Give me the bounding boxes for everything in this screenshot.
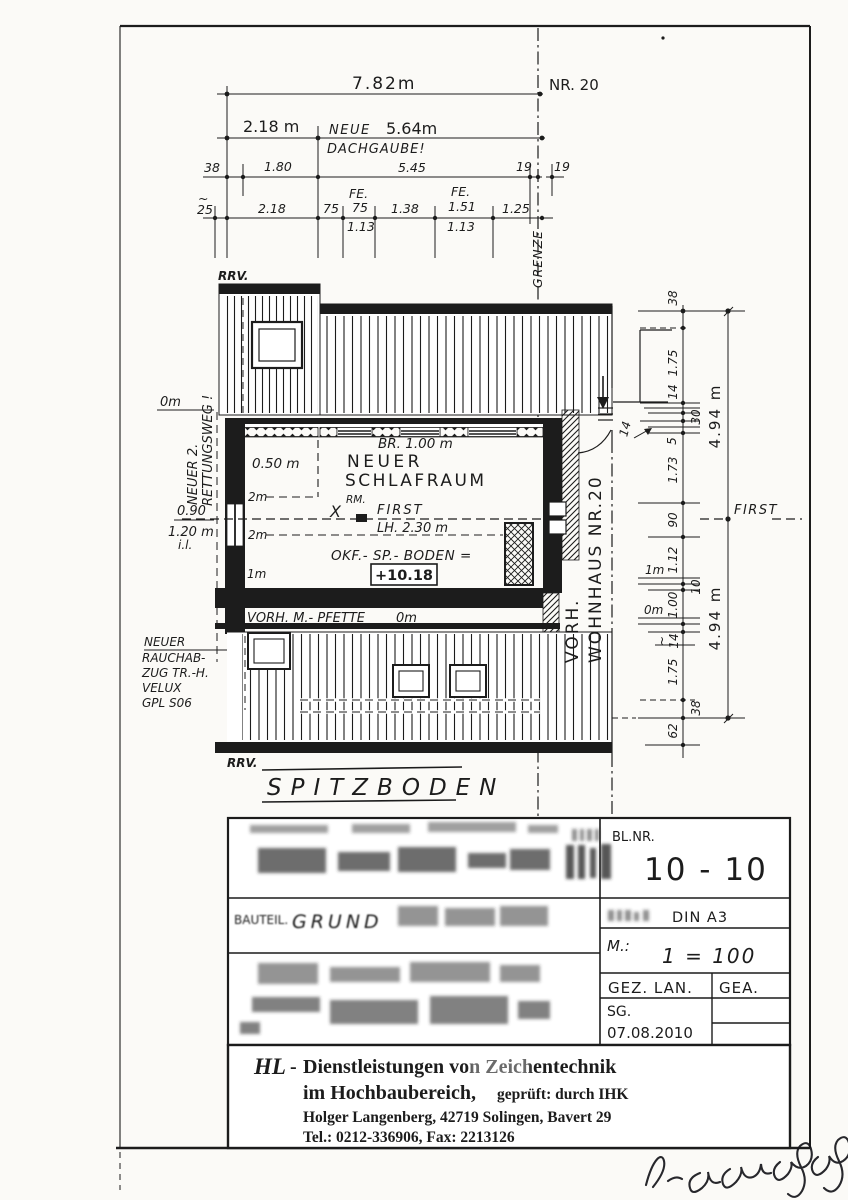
skylight-smoke-vent	[248, 633, 290, 669]
smoke-vent-labels: NEUER RAUCHAB- ZUG TR.-H. VELUX GPL S06	[141, 635, 209, 710]
rdim-38b: 38	[689, 700, 703, 716]
dim-19b: 19	[554, 159, 570, 174]
company-line4: Tel.: 0212-336906, Fax: 2213126	[303, 1129, 515, 1146]
dim-113a: 1.13	[347, 219, 375, 234]
label-pfette-0m: 0m	[396, 611, 417, 626]
rdim-38-top: 38	[666, 290, 680, 306]
rdim-112: 1.12	[666, 547, 680, 574]
label-first: FIRST	[377, 503, 424, 518]
tb-gez: GEZ. LAN.	[608, 979, 693, 997]
dim-br100: BR. 1.00 m	[378, 436, 453, 452]
label-wohnhaus-nr20: WOHNHAUS NR.20	[586, 475, 606, 663]
rdim-5: 5	[665, 437, 679, 445]
rauch-line5: GPL S06	[142, 696, 192, 710]
label-first-right: FIRST	[734, 503, 778, 518]
label-rrv-bottom: RRV.	[227, 756, 257, 770]
floor-plan-drawing: 7.82m NR. 20 2.18 m NEUE 5.64m DACHGAUBE…	[0, 0, 848, 1200]
company-line1: Dienstleistungen von Zeichentechnik	[303, 1056, 617, 1078]
tb-din-format: DIN A3	[672, 910, 728, 926]
dim-138: 1.38	[391, 201, 419, 216]
skylight-lower-2	[450, 665, 486, 697]
label-okf-boden: OKF.- SP.- BODEN =	[331, 548, 472, 564]
scanned-drawing-page: 7.82m NR. 20 2.18 m NEUE 5.64m DACHGAUBE…	[0, 0, 848, 1200]
roof-hatch-lower	[215, 632, 612, 753]
x-mark: X	[329, 502, 342, 521]
dim-218m: 2.18 m	[243, 117, 299, 136]
room-name-line1: NEUER	[347, 452, 423, 472]
rlevel-1m: 1m	[645, 563, 664, 577]
tb-gea: GEA.	[719, 979, 759, 997]
door-swing-arc	[578, 430, 611, 453]
rauch-line2: RAUCHAB-	[142, 651, 205, 665]
company-line3: Holger Langenberg, 42719 Solingen, Baver…	[303, 1109, 612, 1126]
title-block: BL.NR. 10 - 10 BAUTEIL. GRUND DIN A3 M.:…	[228, 818, 790, 1045]
dim-125: 1.25	[502, 201, 530, 216]
label-rrv-top: RRV.	[218, 269, 248, 283]
dim-218b: 2.18	[258, 201, 286, 216]
label-dachgaube: DACHGAUBE!	[327, 142, 426, 157]
skylight-lower-1	[393, 665, 429, 697]
rauch-line4: VELUX	[142, 681, 182, 695]
dim-545: 5.45	[398, 160, 426, 175]
rlevel-0m: 0m	[644, 603, 663, 617]
dim-75a: 75	[323, 201, 339, 216]
dim-113b: 1.13	[447, 219, 475, 234]
floor-plan: RRV.	[141, 269, 672, 820]
dim-lh230: LH. 2.30 m	[377, 521, 448, 536]
rdim-175b: 1.75	[666, 659, 680, 686]
dim-090: 0.90	[177, 504, 206, 519]
rdim-62: 62	[666, 723, 680, 738]
tb-blnr-label: BL.NR.	[612, 830, 655, 845]
title-spitzboden: SPITZBODEN	[267, 775, 505, 801]
level-0m-left: 0m	[160, 395, 181, 410]
rdim-14a: 14	[666, 384, 680, 399]
rdim-173: 1.73	[666, 457, 680, 484]
tb-sg: SG.	[607, 1004, 631, 1020]
rdim-30: 30	[689, 409, 703, 425]
dormer-window-band	[225, 418, 562, 437]
room-name-line2: SCHLAFRAUM	[345, 471, 487, 491]
loft-ladder	[505, 523, 533, 585]
dim-75b: 75	[352, 200, 368, 215]
headroom-2m-b: 2m	[248, 528, 267, 542]
rdim-10: 10	[689, 579, 703, 595]
rescue-route-line1: NEUER 2.	[186, 444, 201, 505]
tb-scale-value: 1 = 100	[662, 944, 756, 968]
rauch-line3: ZUG TR.-H.	[141, 666, 209, 680]
dim-180: 1.80	[264, 159, 292, 174]
company-line2: im Hochbaubereich,	[303, 1082, 476, 1104]
dim-050m: 0.50 m	[252, 456, 300, 472]
label-house-number: NR. 20	[549, 76, 599, 94]
level-annotation-box: +10.18	[371, 564, 437, 585]
headroom-1m: 1m	[247, 567, 266, 581]
first-right-label: FIRST	[700, 503, 802, 519]
label-neue: NEUE	[329, 123, 371, 138]
rauch-line1: NEUER	[144, 635, 185, 649]
company-hl-logo: HL	[253, 1054, 286, 1079]
label-vorh: VORH.	[563, 599, 583, 663]
rdim-14b: 14	[667, 633, 681, 648]
label-grenze: GRENZE	[530, 230, 545, 288]
skylight-upper-left	[252, 322, 302, 368]
drawing-title: SPITZBODEN	[262, 767, 505, 802]
scan-speck	[661, 36, 664, 39]
rescue-route-line2: RETTUNGSWEG !	[201, 395, 216, 506]
tb-sheet-number: 10 - 10	[644, 852, 768, 888]
rdim-90: 90	[666, 512, 680, 528]
label-rm: RM.	[346, 494, 366, 506]
tb-date: 07.08.2010	[607, 1024, 693, 1042]
dim-19a: 19	[516, 159, 532, 174]
tb-scale-label: M.:	[607, 937, 630, 955]
company-line2b: geprüft: durch IHK	[497, 1086, 628, 1103]
dim-151: 1.51	[448, 199, 476, 214]
rdim-175a: 1.75	[666, 350, 680, 377]
tb-grund-label: GRUND	[292, 911, 383, 933]
rdim-100: 1.00	[666, 591, 680, 618]
headroom-2m-a: 2m	[248, 490, 267, 504]
label-pfette: VORH. M.- PFETTE	[247, 611, 366, 626]
company-hl-dash: -	[290, 1056, 297, 1078]
roof-hatch-upper-left	[219, 284, 320, 415]
label-fe2: FE.	[451, 184, 470, 199]
tb-bauteil-label: BAUTEIL.	[234, 913, 288, 927]
label-il: i.l.	[178, 538, 192, 552]
dim-25: 25	[197, 202, 213, 217]
rdim-overall-top: 4.94 m	[706, 384, 724, 449]
dim-38: 38	[204, 160, 220, 175]
dim-overall-width: 7.82m	[352, 74, 416, 94]
roof-hatch-upper	[320, 304, 612, 415]
first-marker-square	[356, 514, 367, 522]
dim-564m: 5.64m	[386, 119, 437, 138]
company-info: HL - Dienstleistungen von Zeichentechnik…	[228, 1045, 790, 1148]
rdim-overall-bottom: 4.94 m	[706, 586, 724, 651]
level-value: +10.18	[375, 568, 433, 584]
label-fe1: FE.	[349, 186, 368, 201]
rdim-arrow14: 14	[616, 420, 633, 438]
